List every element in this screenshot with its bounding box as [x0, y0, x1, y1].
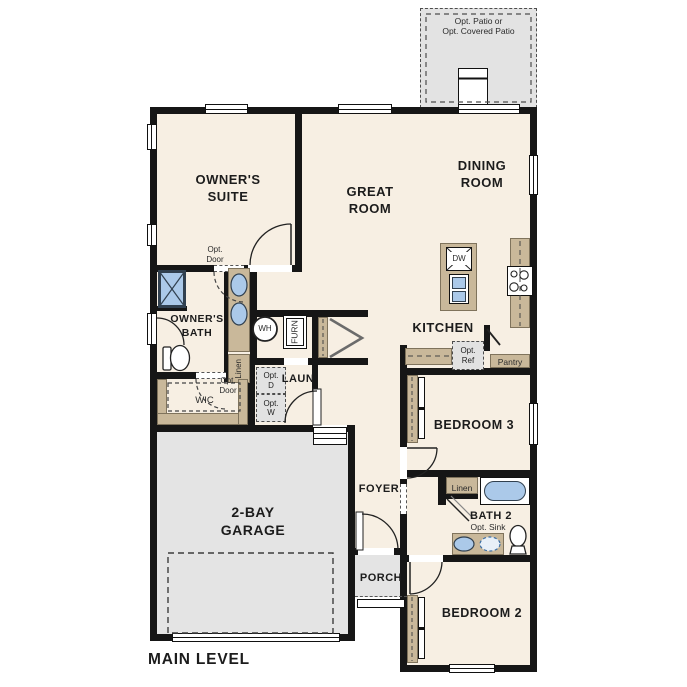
wall-bath2-left — [438, 477, 446, 505]
porch-step — [357, 599, 405, 608]
dishwasher-label: DW — [450, 254, 468, 264]
range — [507, 266, 533, 296]
window-bedroom3-right — [529, 403, 538, 445]
owners-bath-label: OWNER'S BATH — [158, 313, 236, 340]
foyer-label: FOYER — [355, 482, 403, 496]
owners-suite-label: OWNER'S SUITE — [163, 172, 293, 206]
bath2-linen-cabinet: Linen — [446, 477, 478, 494]
opt-washer-box: Opt. W — [256, 394, 286, 422]
wall-pantry-left — [484, 325, 490, 351]
wic-shelf-bottom — [157, 413, 248, 425]
window-greatroom-top — [338, 104, 392, 114]
bedroom3-door-opening — [400, 446, 407, 480]
kitchen-counter-bottom — [405, 348, 452, 365]
window-bedroom2-bottom — [449, 664, 495, 673]
window-suite-left-2 — [147, 224, 157, 246]
wall-utility-top — [248, 310, 368, 317]
window-suite-top — [205, 104, 248, 114]
wic-label: WIC — [182, 395, 227, 406]
opt-refrigerator-label: Opt. Ref — [460, 346, 475, 364]
furnace-inner-box: FURN — [286, 318, 304, 346]
opt-refrigerator-box: Opt. Ref — [452, 341, 484, 370]
opt-washer-label: Opt. W — [263, 399, 278, 417]
water-heater-label: WH — [253, 324, 277, 334]
island-sink-bowl-2 — [452, 291, 466, 302]
bedroom3-closet-shelf — [407, 375, 418, 443]
suite-opt-door-label: Opt. Door — [196, 245, 234, 264]
dining-room-label: DINING ROOM — [440, 158, 524, 192]
bath2-vanity — [452, 533, 504, 555]
pantry-label: Pantry — [490, 357, 530, 367]
great-room-label: GREAT ROOM — [330, 184, 410, 218]
furnace-box: FURN — [283, 315, 307, 349]
bedroom2-closet-doors — [418, 597, 425, 659]
wall-utility-bottom-a — [248, 358, 284, 365]
island-sink-bowl-1 — [452, 277, 466, 289]
bedroom2-label: BEDROOM 2 — [430, 605, 534, 621]
bedroom2-door-opening — [409, 555, 443, 562]
laundry-label: LAUN — [280, 372, 316, 386]
patio-slider-door — [458, 104, 520, 114]
floor-plan: Linen Linen Opt. Ref Opt. D Opt. W FURN — [0, 0, 687, 687]
patio-landing — [458, 68, 488, 108]
tub — [484, 481, 526, 501]
garage-door — [172, 633, 340, 642]
porch-edge-dashed — [355, 596, 407, 597]
wall-garage-right — [348, 425, 355, 641]
coat-closet-shelf — [318, 317, 328, 358]
garage-label: 2-BAY GARAGE — [203, 503, 303, 539]
furnace-label: FURN — [290, 320, 300, 344]
window-suite-left-1 — [147, 124, 157, 150]
wall-suite-greatroom — [295, 114, 302, 265]
opt-dryer-label: Opt. D — [263, 371, 278, 389]
bath2-linen-label: Linen — [452, 483, 473, 493]
wic-opt-door-label: Opt. Door — [208, 376, 248, 395]
suite-door-opening — [248, 265, 292, 272]
porch-label: PORCH — [357, 571, 405, 585]
patio-label: Opt. Patio or Opt. Covered Patio — [420, 16, 537, 36]
window-dining-right — [529, 155, 538, 195]
wall-bed3-bath2 — [407, 470, 537, 477]
bedroom3-label: BEDROOM 3 — [424, 417, 524, 433]
wall-left — [150, 107, 157, 641]
kitchen-label: KITCHEN — [407, 320, 479, 337]
window-bath-left — [147, 313, 157, 345]
main-level-title: MAIN LEVEL — [148, 650, 308, 670]
garage-entry-steps — [313, 427, 347, 445]
opt-sink-label: Opt. Sink — [458, 522, 518, 532]
utility-opening — [284, 358, 308, 365]
front-door-opening — [358, 548, 394, 555]
shower — [158, 270, 186, 308]
bedroom2-closet-shelf — [407, 595, 418, 663]
